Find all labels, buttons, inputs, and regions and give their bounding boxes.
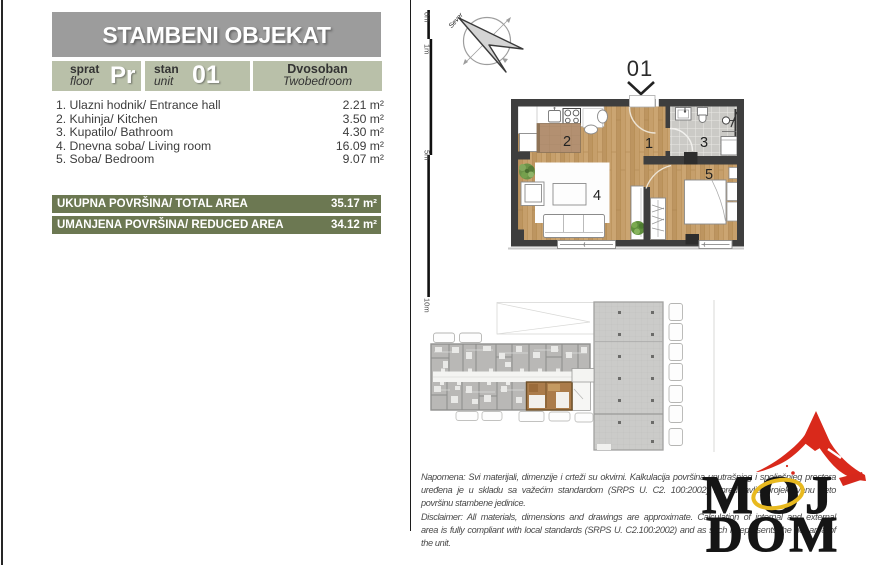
svg-text:5m: 5m [423, 150, 432, 160]
svg-text:4: 4 [593, 188, 601, 204]
svg-text:5: 5 [705, 167, 713, 183]
svg-text:3: 3 [700, 135, 708, 151]
svg-text:2: 2 [563, 134, 571, 150]
svg-text:1: 1 [645, 136, 653, 152]
svg-text:1m: 1m [423, 44, 432, 54]
svg-text:0m: 0m [423, 12, 432, 22]
svg-text:DOM: DOM [706, 508, 841, 564]
